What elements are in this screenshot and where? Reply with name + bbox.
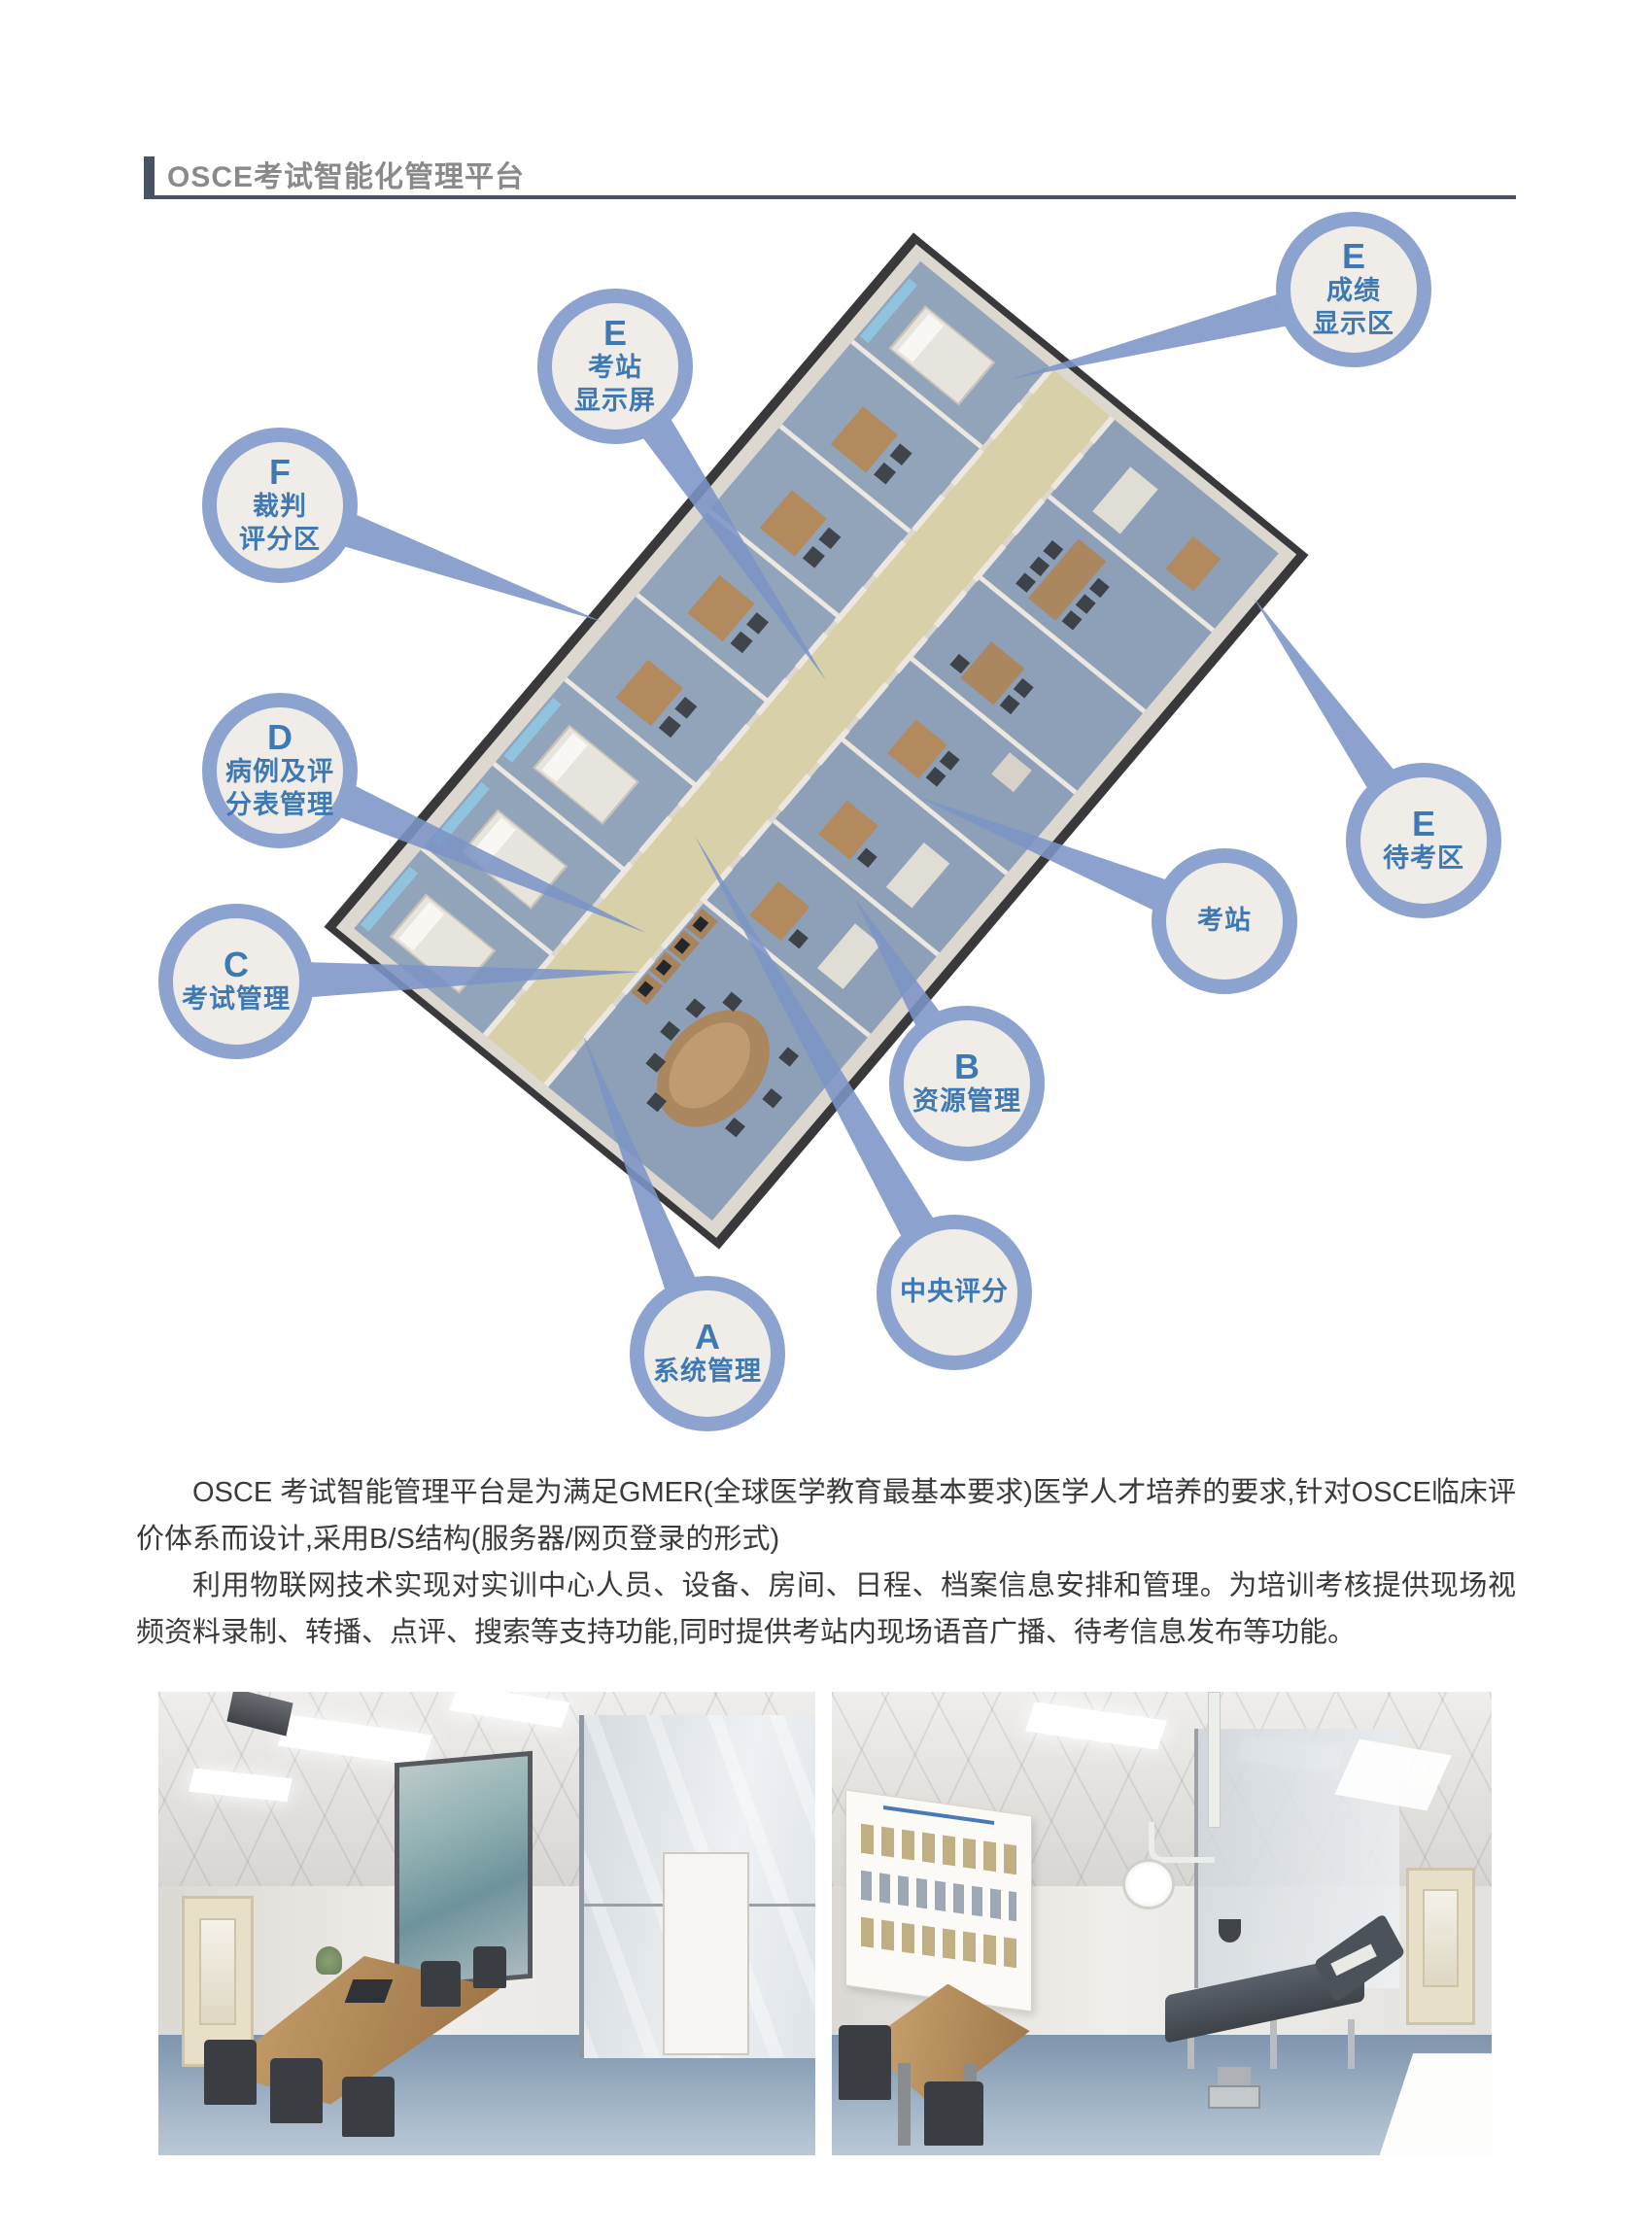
chair [270,2058,323,2123]
callout-label: 系统管理 [653,1356,762,1389]
glass-partition [579,1715,815,2058]
callout-waiting-area: E 待考区 [1346,763,1501,918]
callout-score-display: E 成绩 显示区 [1276,212,1431,367]
callout-judge-scoring: F 裁判 评分区 [202,428,358,583]
bed-leg [1348,2019,1355,2070]
callout-label: 成绩 [1326,275,1381,308]
callout-label: 病例及评 [225,756,334,789]
laptop [345,1979,393,2003]
description-text: OSCE 考试智能管理平台是为满足GMER(全球医学教育最基本要求)医学人才培养… [136,1469,1516,1656]
chair [204,2040,257,2105]
callout-label: 待考区 [1383,842,1464,876]
callout-label: 分表管理 [225,789,334,822]
poster-diagram-row [861,1917,1016,1968]
bed-leg [1270,2019,1277,2070]
ceiling-light-panel [1025,1702,1167,1749]
chair [839,2025,891,2099]
callout-label: 评分区 [239,524,321,557]
adjacent-room-door [663,1852,750,2055]
callout-letter: F [269,454,291,491]
callout-label: 考试管理 [182,983,291,1016]
callout-letter: A [695,1319,720,1356]
step-stool [1218,2067,1251,2085]
ceiling-mount-pole [1208,1692,1221,1828]
callout-station: 考站 [1152,848,1297,994]
poster-title-line [883,1805,994,1825]
callout-letter: B [954,1049,980,1085]
light-arm [1149,1822,1215,1864]
ceiling-light-panel [278,1715,432,1767]
wall-display-screen [395,1751,533,1990]
callout-label: 显示屏 [574,385,656,418]
ceiling-light-panel [189,1769,293,1803]
exam-bed [1149,1933,1426,2081]
photo-observation-room [158,1692,815,2155]
callout-label: 显示区 [1313,308,1394,341]
callout-exam-management: C 考试管理 [158,904,314,1059]
paragraph-platform-intro: OSCE 考试智能管理平台是为满足GMER(全球医学教育最基本要求)医学人才培养… [136,1469,1516,1563]
callout-letter: E [1412,806,1435,842]
callout-label: 考站 [588,352,642,385]
chair [342,2077,395,2137]
callout-label: 裁判 [253,491,307,524]
callout-letter: C [224,946,249,983]
poster-diagram-row [861,1871,1016,1921]
floorplan-building [324,232,1308,1249]
callout-station-display: E 考站 显示屏 [537,289,693,444]
callout-system-management: A 系统管理 [630,1276,785,1431]
callout-label: 中央评分 [900,1276,1009,1309]
photo-exam-room [832,1692,1492,2155]
step-stool [1208,2085,1260,2109]
wall-speaker [227,1692,293,1736]
callout-case-management: D 病例及评 分表管理 [202,693,358,848]
chair [924,2081,983,2147]
paragraph-iot-functions: 利用物联网技术实现对实训中心人员、设备、房间、日程、档案信息安排和管理。为培训考… [136,1563,1516,1656]
table-leg [898,2063,912,2147]
osce-layout-poster [845,1790,1032,2012]
door-window [199,1918,236,2025]
procedure-light [1122,1859,1175,1909]
callout-letter: E [1342,238,1365,275]
callout-letter: E [603,315,627,352]
ceiling-light-panel [449,1692,569,1728]
callout-resource-management: B 资源管理 [889,1006,1045,1161]
chair [421,1961,461,2008]
door-window [1423,1889,1459,1987]
plant [316,1946,342,1975]
callout-label: 资源管理 [912,1085,1021,1118]
callout-central-scoring: 中央评分 [877,1215,1032,1370]
page: { "header": { "title": "OSCE考试智能化管理平台" }… [0,0,1652,2235]
callout-label: 考站 [1197,905,1252,938]
chair [473,1946,506,1988]
callout-letter: D [267,719,293,756]
poster-diagram-row [861,1824,1016,1874]
